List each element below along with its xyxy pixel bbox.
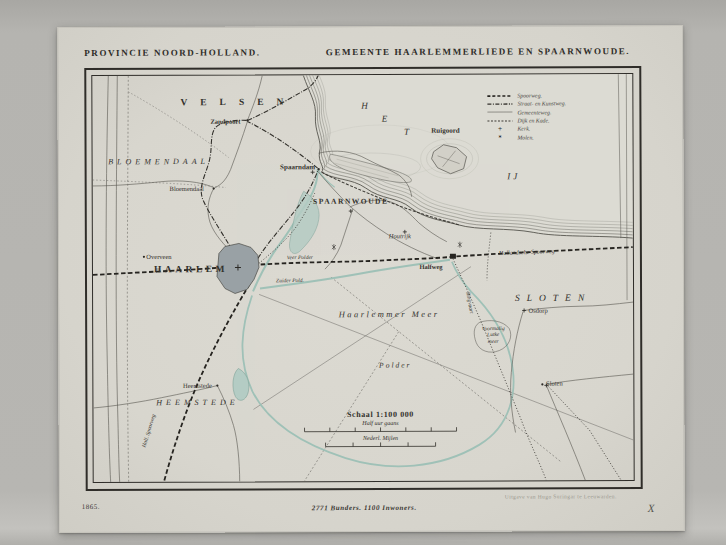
photo-backdrop: PROVINCIE NOORD-HOLLAND. GEMEENTE HAARLE… (0, 0, 726, 545)
scale-bar1 (303, 426, 459, 435)
map-label: Heemstede (183, 382, 212, 390)
map-label: VELSEN (180, 97, 296, 108)
map-label: Veer Polder (287, 254, 313, 260)
map-label: SLOTEN (515, 293, 591, 304)
map-label: T (404, 127, 409, 137)
map-label: E (382, 114, 388, 124)
church-cross-icon: + (498, 126, 503, 132)
map-label: Holl. Spoorweg (141, 413, 157, 448)
map-label: Ruigoord (431, 127, 459, 135)
handwritten-mark: X (648, 502, 655, 514)
map-label: IJ (507, 171, 520, 181)
map-label: Spaarndam (280, 163, 315, 171)
map-label: Houtrijk (389, 232, 411, 240)
map-sheet: PROVINCIE NOORD-HOLLAND. GEMEENTE HAARLE… (57, 25, 685, 533)
statistics-label: 2771 Bunders. 1100 Inwoners. (86, 503, 643, 513)
map-label: SPAARNWOUDE (313, 198, 389, 207)
map-label: Bloemendaal (170, 185, 204, 193)
map-label: Voormalig Lutke meer (482, 325, 505, 344)
scale-title: Schaal 1:100 000 (299, 410, 461, 420)
map-area: VELSENZandpoortBLOEMENDAALBloemendaalSpa… (91, 73, 634, 483)
road-line-icon (486, 110, 513, 115)
map-label: Sloten (546, 380, 563, 388)
dike-line-icon (486, 118, 513, 123)
map-label: Zandpoort (210, 118, 240, 126)
map-label: H (361, 101, 368, 111)
map-label: Haarlemmer Meer (339, 310, 440, 320)
windmill-star-icon: ✶ (498, 134, 503, 140)
scale-bar2 (303, 441, 459, 450)
map-label: Ringvaart (465, 291, 475, 314)
map-label: Zuider Pold. (276, 277, 304, 283)
railway-line-icon (486, 93, 513, 98)
map-label: Hollandsche Spoorweg (499, 248, 555, 257)
map-label: BLOEMENDAAL (108, 157, 209, 167)
map-label: Osdorp (529, 307, 548, 315)
province-title: PROVINCIE NOORD-HOLLAND. (84, 47, 260, 58)
legend-item-molen: ✶ Molen. (486, 133, 624, 142)
map-label: Overveen (146, 253, 171, 261)
paved-road-line-icon (486, 101, 513, 106)
scale-indicator: Schaal 1:100 000 Half uur gaans Nederl. … (299, 410, 461, 450)
municipality-title: GEMEENTE HAARLEMMERLIEDE EN SPAARNWOUDE. (326, 46, 630, 57)
publisher-imprint: Uitgave van Hugo Suringar te Leeuwarden. (86, 493, 635, 501)
map-label: Halfweg (419, 263, 442, 271)
map-label: Polder (379, 362, 411, 371)
map-legend: Spoorweg. Straat- en Kunstweg. Gemeentew… (486, 91, 624, 141)
map-label: HAARLEM (154, 264, 228, 275)
map-label: HEEMSTEDE (156, 398, 238, 407)
